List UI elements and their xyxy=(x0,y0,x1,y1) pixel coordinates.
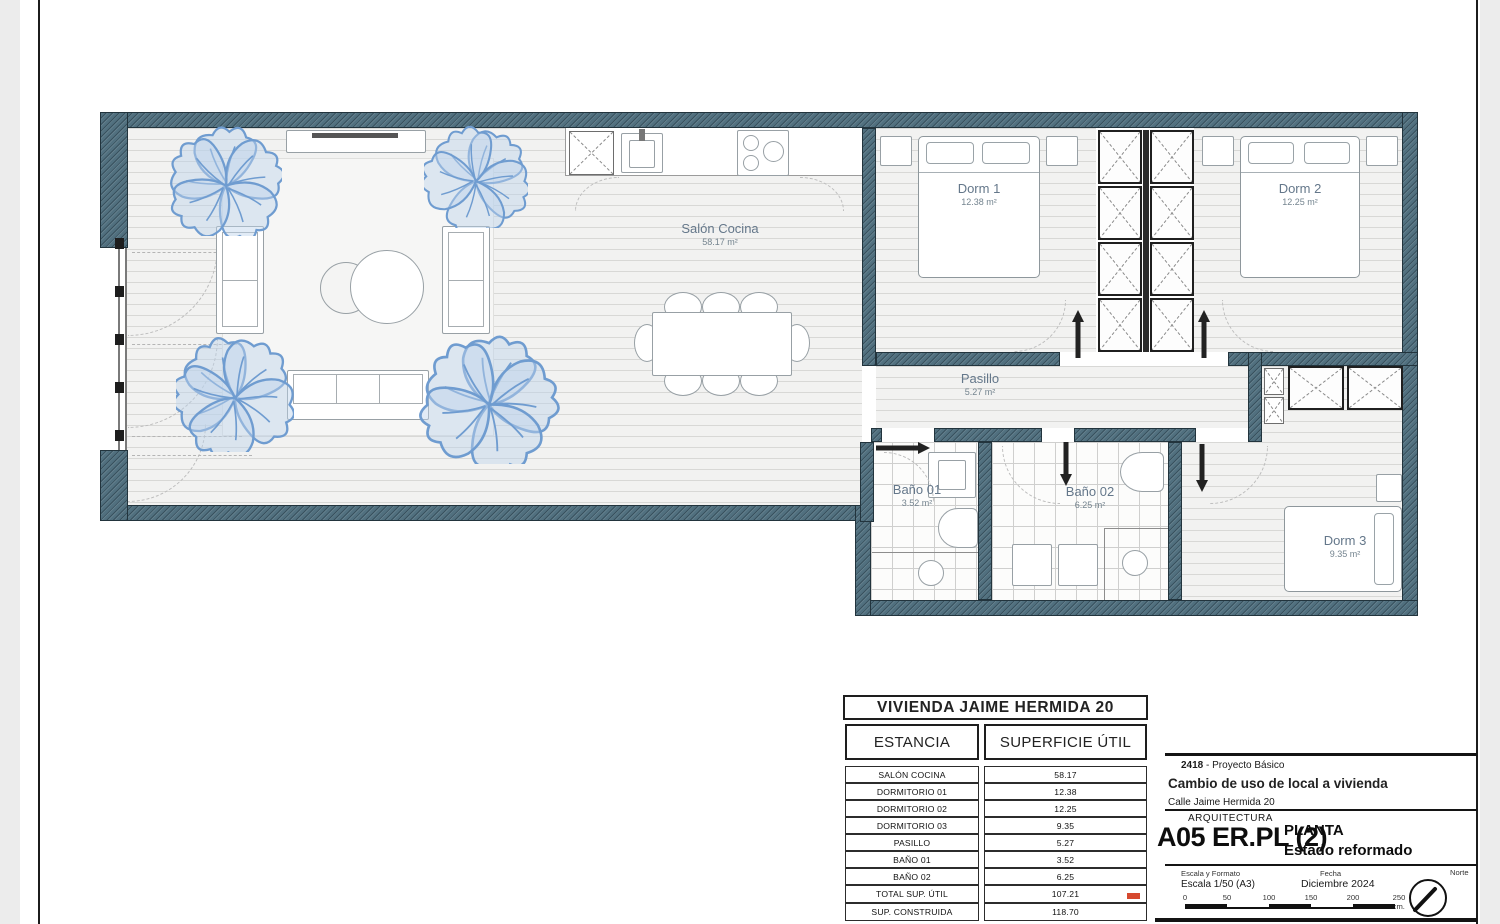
burner-icon xyxy=(743,155,759,171)
room-name: Pasillo xyxy=(915,372,1045,387)
shower-drain-icon xyxy=(1122,550,1148,576)
table-cell-label: PASILLO xyxy=(845,834,979,851)
room-label-salon: Salón Cocina 58.17 m² xyxy=(648,222,792,247)
sheet-border-right xyxy=(1476,0,1478,924)
room-name: Baño 02 xyxy=(1040,485,1140,500)
titleblock-rule-top xyxy=(1165,753,1477,756)
window-sill-dashes xyxy=(132,455,252,456)
kitchen-faucet-icon xyxy=(639,129,645,141)
window-hinge-icon xyxy=(115,334,124,345)
room-name: Salón Cocina xyxy=(648,222,792,237)
titleblock-rule-mid1 xyxy=(1165,809,1477,811)
room-area: 5.27 m² xyxy=(915,387,1045,397)
room-name: Dorm 2 xyxy=(1240,182,1360,197)
project-code: 2418 - Proyecto Básico xyxy=(1181,760,1284,771)
titleblock-rule-bottom xyxy=(1155,918,1477,922)
wall-pasillo-bottom-b xyxy=(934,428,1042,442)
col1-text: ESTANCIA xyxy=(874,734,950,751)
pillow xyxy=(982,142,1030,164)
titleblock-rule-mid2 xyxy=(1165,864,1477,866)
wall-pasillo-bottom-a xyxy=(871,428,882,442)
north-label: Norte xyxy=(1450,868,1469,877)
table-cell-label: DORMITORIO 02 xyxy=(845,800,979,817)
table-cell-value: 9.35 xyxy=(984,817,1147,834)
table-cell-label: DORMITORIO 03 xyxy=(845,817,979,834)
room-name: Dorm 1 xyxy=(918,182,1040,197)
page-margin-right xyxy=(1480,0,1500,924)
project-number: 2418 xyxy=(1181,760,1203,771)
nightstand xyxy=(1202,136,1234,166)
window-hinge-icon xyxy=(115,286,124,297)
bed-blanket-line xyxy=(919,172,1039,173)
table-cell-label: BAÑO 02 xyxy=(845,868,979,885)
wall-top xyxy=(113,112,1418,128)
wall-pasillo-end xyxy=(1248,352,1262,442)
room-area: 12.25 m² xyxy=(1240,197,1360,207)
table-col-header-estancia: ESTANCIA xyxy=(845,724,979,760)
window-hinge-icon xyxy=(115,430,124,441)
wardrobe-x-icon xyxy=(1288,366,1344,410)
table-cell-value: 118.70 xyxy=(984,903,1147,921)
table-cell-value: 12.38 xyxy=(984,783,1147,800)
table-col-header-superficie: SUPERFICIE ÚTIL xyxy=(984,724,1147,760)
bano2-shower-line-v xyxy=(1104,528,1105,600)
wardrobe-x-icon xyxy=(1098,186,1142,240)
pillow xyxy=(1248,142,1294,164)
room-label-dorm2: Dorm 2 12.25 m² xyxy=(1240,182,1360,207)
sliding-door-arrow-icon xyxy=(1060,442,1072,486)
kitchen-sink-basin xyxy=(629,140,655,168)
burner-icon xyxy=(743,135,759,151)
room-area: 3.52 m² xyxy=(872,498,962,508)
scale-segment xyxy=(1227,907,1269,909)
table-cell-label: BAÑO 01 xyxy=(845,851,979,868)
nightstand xyxy=(1046,136,1078,166)
wall-bano1-bano2 xyxy=(978,442,992,600)
burner-icon xyxy=(763,141,784,162)
wall-bottom-right xyxy=(855,600,1418,616)
table-cell-label: DORMITORIO 01 xyxy=(845,783,979,800)
wardrobe-x-icon xyxy=(1150,242,1194,296)
sofa-cushions xyxy=(293,374,423,404)
wardrobe-x-icon xyxy=(1098,242,1142,296)
scale-segment xyxy=(1353,904,1395,909)
sliding-door-arrow-icon xyxy=(1198,310,1210,358)
room-label-pasillo: Pasillo 5.27 m² xyxy=(915,372,1045,397)
scale-tick: 150 xyxy=(1305,893,1318,902)
project-number-rest: - Proyecto Básico xyxy=(1203,760,1284,771)
room-label-dorm1: Dorm 1 12.38 m² xyxy=(918,182,1040,207)
kitchen-appliance-x-icon xyxy=(569,131,614,175)
scale-value: Escala 1/50 (A3) xyxy=(1181,879,1255,890)
bano2-sink xyxy=(1058,544,1098,586)
drawing-sheet: Salón Cocina 58.17 m² Dorm 1 12.38 m² Do… xyxy=(0,0,1500,924)
wardrobe-x-icon xyxy=(1347,366,1403,410)
sheet-name-line1: PLANTA xyxy=(1284,822,1344,839)
coffee-table-large xyxy=(350,250,424,324)
monstera-plant-icon xyxy=(170,124,282,236)
bano2-shower-line-h xyxy=(1104,528,1168,529)
wall-bottom-salon xyxy=(113,505,871,521)
wardrobe-x-icon xyxy=(1264,368,1284,395)
room-name: Dorm 3 xyxy=(1290,534,1400,549)
armchair-cushion xyxy=(222,232,258,327)
wall-bano2-dorm3 xyxy=(1168,442,1182,600)
closet-divider-wall xyxy=(1143,130,1149,352)
tv-icon xyxy=(312,133,398,138)
scale-tick: 50 xyxy=(1223,893,1231,902)
table-cell-value: 5.27 xyxy=(984,834,1147,851)
wall-pasillo-top-a xyxy=(876,352,1060,366)
scale-tick: 100 xyxy=(1263,893,1276,902)
wall-left-bottom-block xyxy=(100,450,128,521)
wardrobe-x-icon xyxy=(1098,298,1142,352)
scale-tick: 0 xyxy=(1183,893,1187,902)
table-cell-label: SUP. CONSTRUIDA xyxy=(845,903,979,921)
date-value: Diciembre 2024 xyxy=(1301,878,1375,890)
room-label-bano2: Baño 02 6.25 m² xyxy=(1040,485,1140,510)
room-area: 9.35 m² xyxy=(1290,549,1400,559)
table-cell-value: 6.25 xyxy=(984,868,1147,885)
monstera-plant-icon xyxy=(424,124,528,228)
table-cell-value: 3.52 xyxy=(984,851,1147,868)
project-title: Cambio de uso de local a vivienda xyxy=(1168,776,1388,791)
wardrobe-x-icon xyxy=(1150,186,1194,240)
scale-segment xyxy=(1185,904,1227,909)
shower-drain-icon xyxy=(918,560,944,586)
bano1-toilet xyxy=(938,508,978,548)
room-label-dorm3: Dorm 3 9.35 m² xyxy=(1290,534,1400,559)
window-wall-left xyxy=(118,248,127,450)
table-cell-value: 107.21 xyxy=(984,885,1147,903)
scale-tick: 200 xyxy=(1347,893,1360,902)
monstera-plant-icon xyxy=(176,332,294,452)
wardrobe-x-icon xyxy=(1098,130,1142,184)
sheet-border-left xyxy=(38,0,40,924)
bano1-shower-line xyxy=(872,552,978,553)
room-name: Baño 01 xyxy=(872,483,962,498)
table-cell-label: TOTAL SUP. ÚTIL xyxy=(845,885,979,903)
nightstand xyxy=(1366,136,1398,166)
bano2-sink xyxy=(1012,544,1052,586)
wall-left-top-block xyxy=(100,112,128,248)
pillow xyxy=(1304,142,1350,164)
wardrobe-x-icon xyxy=(1264,397,1284,424)
monstera-plant-icon xyxy=(416,332,562,464)
room-label-bano1: Baño 01 3.52 m² xyxy=(872,483,962,508)
scale-segment xyxy=(1311,907,1353,909)
red-tick xyxy=(1127,893,1140,899)
sliding-door-arrow-icon xyxy=(1072,310,1084,358)
wall-bano1-left xyxy=(860,442,874,522)
scale-segment xyxy=(1269,904,1311,909)
room-area: 58.17 m² xyxy=(648,237,792,247)
sheet-name-line2: Estado reformado xyxy=(1284,842,1412,859)
nightstand xyxy=(1376,474,1402,502)
table-title: VIVIENDA JAIME HERMIDA 20 xyxy=(843,695,1148,720)
room-area: 6.25 m² xyxy=(1040,500,1140,510)
north-compass-icon xyxy=(1406,877,1450,919)
wall-salon-dorm1 xyxy=(862,128,876,366)
scale-bar: 0 50 100 150 200 250 cm. xyxy=(1185,893,1399,911)
room-area: 12.38 m² xyxy=(918,197,1040,207)
dining-table xyxy=(652,312,792,376)
table-cell-value: 58.17 xyxy=(984,766,1147,783)
date-label: Fecha xyxy=(1320,869,1341,878)
nightstand xyxy=(880,136,912,166)
bed-blanket-line xyxy=(1241,172,1359,173)
table-title-text: VIVIENDA JAIME HERMIDA 20 xyxy=(877,699,1114,717)
window-hinge-icon xyxy=(115,238,124,249)
wardrobe-x-icon xyxy=(1150,298,1194,352)
pillow xyxy=(926,142,974,164)
wardrobe-x-icon xyxy=(1150,130,1194,184)
table-cell-label: SALÓN COCINA xyxy=(845,766,979,783)
window-hinge-icon xyxy=(115,382,124,393)
project-address: Calle Jaime Hermida 20 xyxy=(1168,797,1275,808)
sliding-door-arrow-icon xyxy=(1196,444,1208,492)
table-cell-value: 12.25 xyxy=(984,800,1147,817)
page-margin-left xyxy=(0,0,20,924)
scale-label: Escala y Formato xyxy=(1181,869,1240,878)
armchair-cushion xyxy=(448,232,484,327)
col2-text: SUPERFICIE ÚTIL xyxy=(1000,734,1131,751)
wall-pasillo-bottom-c xyxy=(1074,428,1196,442)
